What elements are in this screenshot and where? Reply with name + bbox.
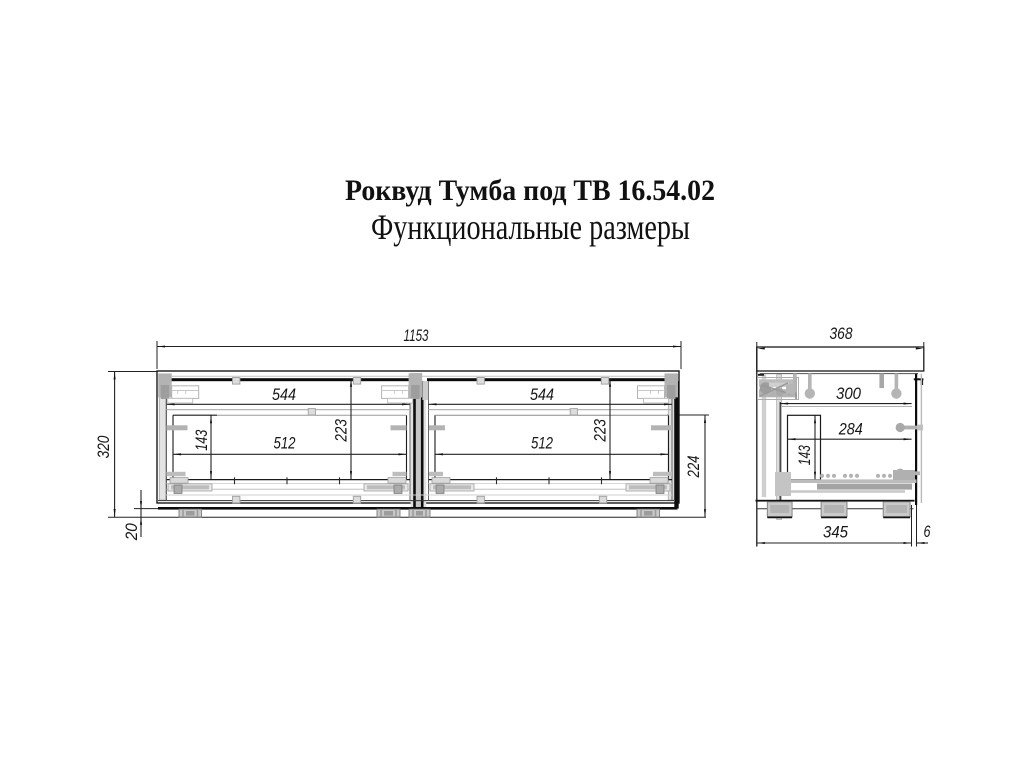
svg-text:512: 512 xyxy=(274,435,296,453)
svg-text:544: 544 xyxy=(530,386,554,404)
svg-text:223: 223 xyxy=(332,418,350,442)
svg-text:368: 368 xyxy=(830,325,854,343)
svg-text:20: 20 xyxy=(123,523,141,542)
svg-text:300: 300 xyxy=(836,385,862,403)
svg-text:345: 345 xyxy=(823,524,849,542)
svg-text:143: 143 xyxy=(193,429,211,451)
svg-text:512: 512 xyxy=(531,435,553,453)
svg-text:1153: 1153 xyxy=(404,327,430,345)
svg-text:544: 544 xyxy=(272,386,296,404)
svg-text:224: 224 xyxy=(685,456,703,479)
svg-text:320: 320 xyxy=(95,435,113,458)
svg-text:284: 284 xyxy=(838,421,863,439)
svg-text:143: 143 xyxy=(796,445,814,466)
svg-text:6: 6 xyxy=(924,523,932,541)
svg-text:Функциональные размеры: Функциональные размеры xyxy=(371,207,690,247)
svg-text:223: 223 xyxy=(591,418,609,442)
svg-text:Роквуд Тумба под ТВ 16.54.02: Роквуд Тумба под ТВ 16.54.02 xyxy=(345,174,715,207)
